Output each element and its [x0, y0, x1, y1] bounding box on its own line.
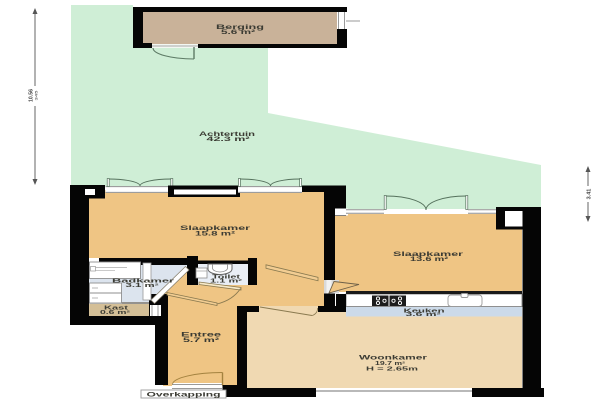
svg-text:13.6 m²: 13.6 m² — [410, 256, 449, 263]
svg-text:0.6 m²: 0.6 m² — [100, 310, 131, 316]
svg-text:42.3 m²: 42.3 m² — [207, 136, 252, 143]
svg-text:15.8 m²: 15.8 m² — [195, 231, 236, 238]
svg-text:H = 2.65m: H = 2.65m — [366, 367, 419, 373]
svg-text:3.6 m²: 3.6 m² — [406, 312, 442, 318]
svg-text:3.1 m²: 3.1 m² — [126, 283, 160, 289]
svg-text:5.6 m²: 5.6 m² — [221, 29, 256, 36]
svg-text:345: 345 — [34, 89, 39, 100]
svg-text:5.7 m²: 5.7 m² — [183, 337, 221, 344]
svg-text:1.1 m²: 1.1 m² — [210, 279, 243, 285]
svg-text:Overkapping: Overkapping — [147, 392, 221, 399]
svg-text:3.41: 3.41 — [587, 189, 593, 200]
